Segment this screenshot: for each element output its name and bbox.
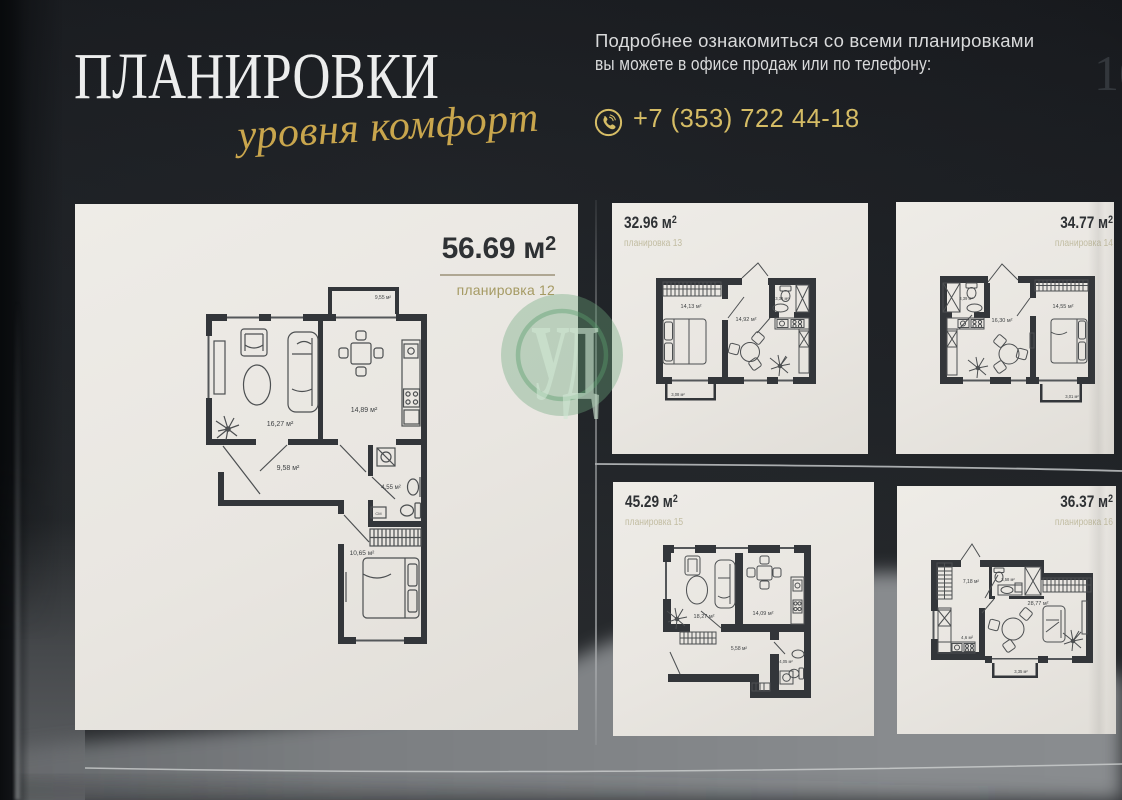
svg-text:28,77 м²: 28,77 м² xyxy=(1028,601,1049,607)
svg-text:3,08 м²: 3,08 м² xyxy=(671,392,685,397)
svg-text:14,13 м²: 14,13 м² xyxy=(681,304,702,310)
svg-text:4,55 м²: 4,55 м² xyxy=(381,485,400,491)
svg-text:3,38 м²: 3,38 м² xyxy=(775,296,789,301)
svg-text:18,27 м²: 18,27 м² xyxy=(694,614,715,620)
svg-text:3,39 м²: 3,39 м² xyxy=(959,296,973,301)
svg-text:16,27 м²: 16,27 м² xyxy=(267,421,294,428)
svg-text:5,58 м²: 5,58 м² xyxy=(731,646,748,652)
svg-text:14,55 м²: 14,55 м² xyxy=(1053,304,1074,310)
svg-text:9,58 м²: 9,58 м² xyxy=(277,465,300,472)
svg-text:14,92 м²: 14,92 м² xyxy=(736,317,757,323)
svg-text:10,65 м²: 10,65 м² xyxy=(350,550,376,557)
svg-text:16,30 м²: 16,30 м² xyxy=(992,318,1013,324)
svg-text:3,35 м²: 3,35 м² xyxy=(1014,669,1028,674)
svg-text:4,05 м²: 4,05 м² xyxy=(779,659,793,664)
svg-text:14,09 м²: 14,09 м² xyxy=(753,611,774,617)
svg-text:3,01 м²: 3,01 м² xyxy=(1065,394,1079,399)
svg-text:7,18 м²: 7,18 м² xyxy=(963,579,980,585)
svg-text:3,58 м²: 3,58 м² xyxy=(1001,577,1015,582)
svg-text:СМ: СМ xyxy=(375,511,381,516)
svg-text:УД: УД xyxy=(530,304,599,419)
svg-text:4,6 м²: 4,6 м² xyxy=(961,635,974,640)
svg-text:14,89 м²: 14,89 м² xyxy=(351,407,378,414)
